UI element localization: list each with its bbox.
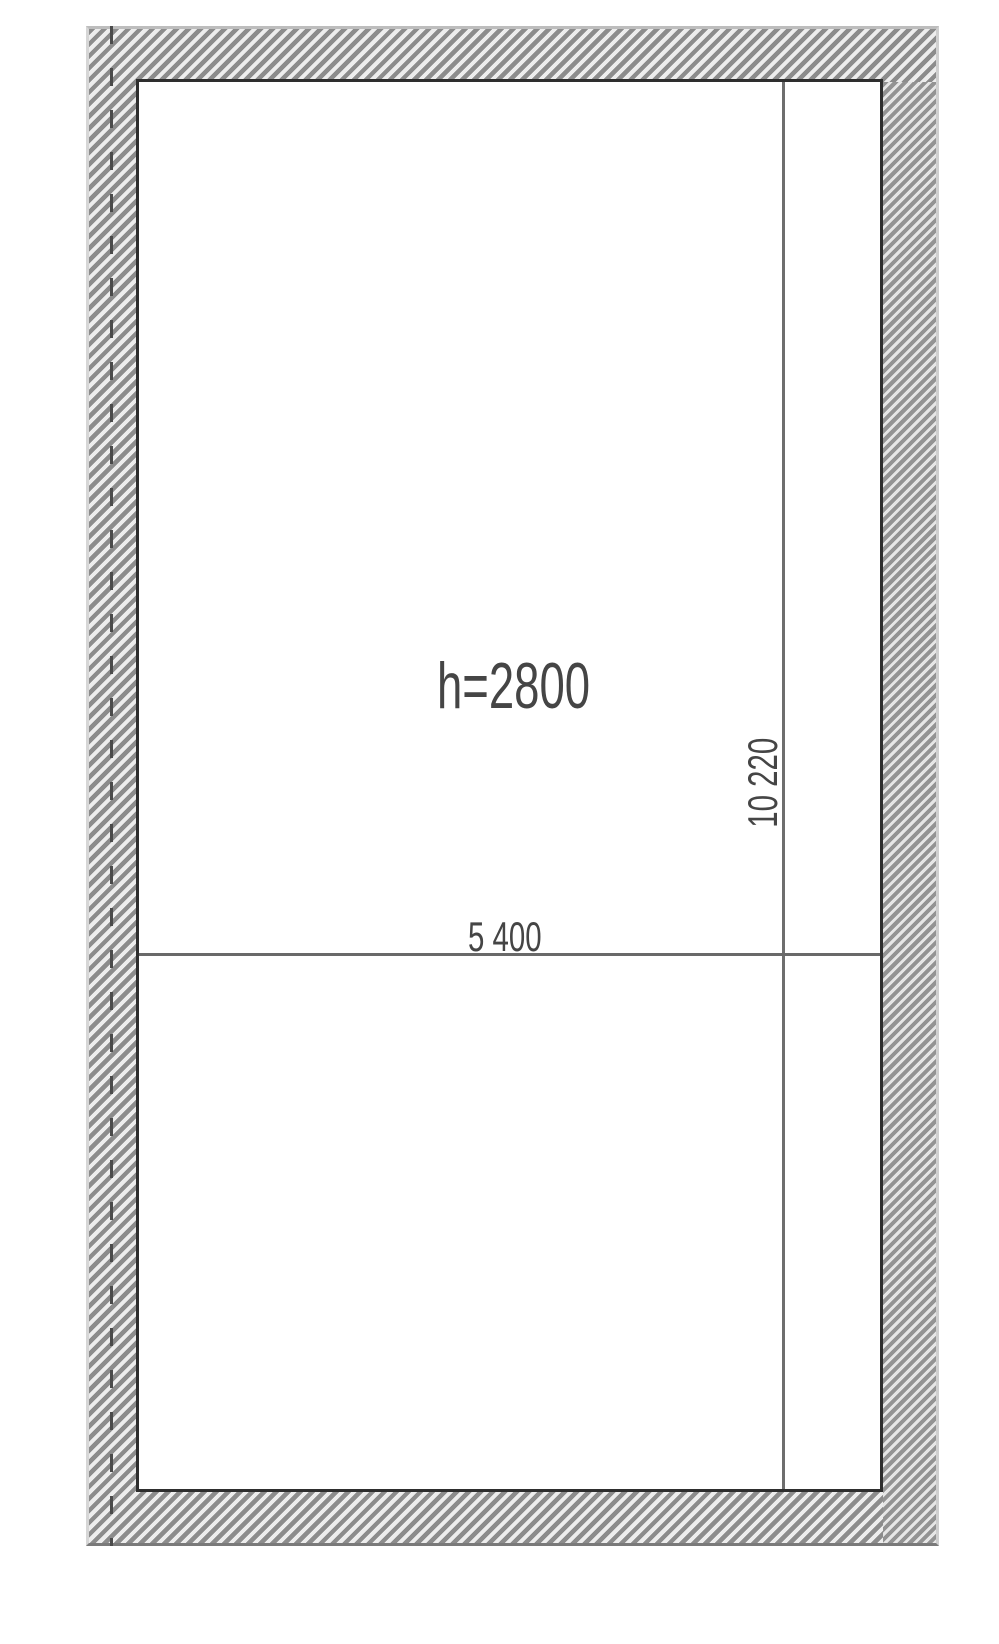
ceiling-height-label: h=2800 (437, 653, 656, 718)
ceiling-height-text: h=2800 (437, 653, 590, 718)
width-dimension-label: 5 400 (468, 916, 573, 958)
length-dimension-text: 10 220 (743, 738, 783, 828)
drawing-sheet: h=2800 5 400 10 220 (0, 0, 999, 1644)
length-dimension-label: 10 220 (743, 713, 783, 853)
wall-axis-dashed-line (110, 26, 113, 1546)
width-dimension-text: 5 400 (468, 916, 542, 958)
right-wall-hatch (883, 82, 936, 1543)
